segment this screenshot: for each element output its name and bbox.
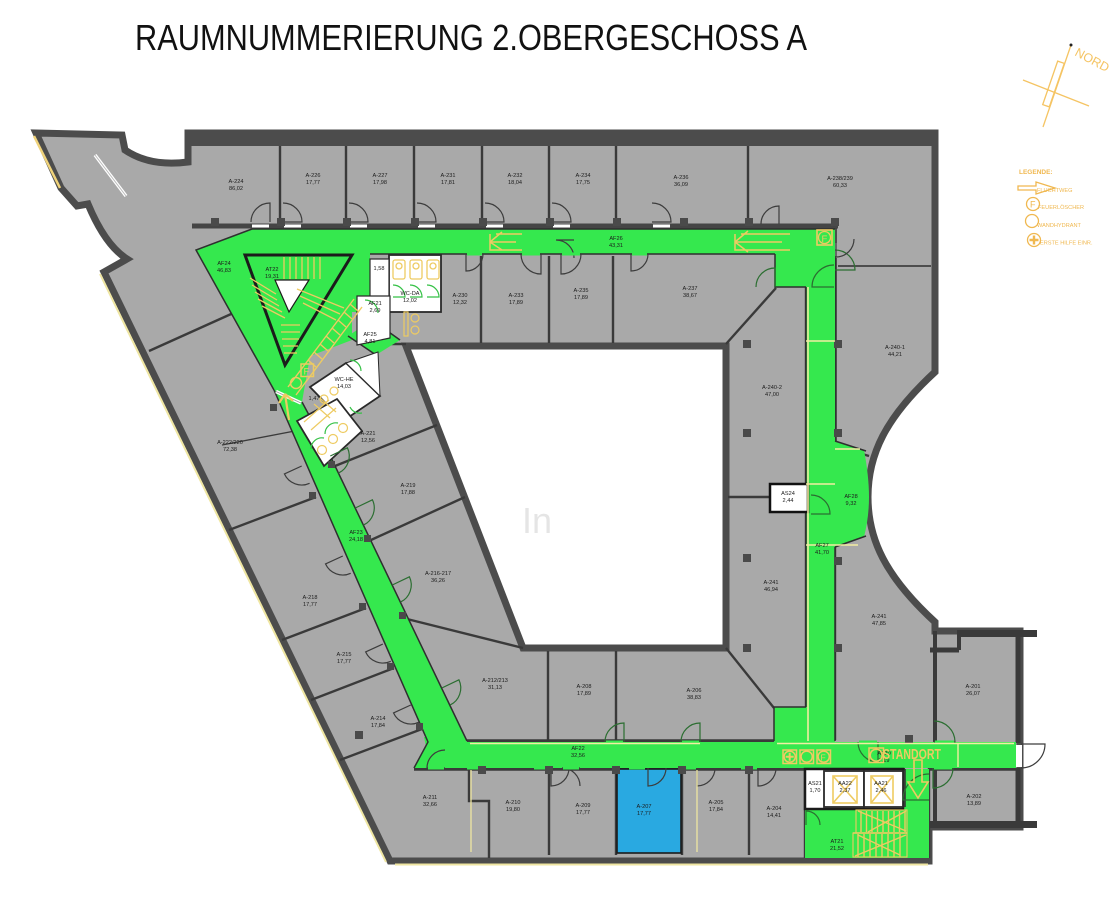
svg-text:AF289,32: AF289,32 [844,494,857,507]
svg-text:A-23417,75: A-23417,75 [576,173,591,186]
svg-text:A-22486,02: A-22486,02 [229,179,244,192]
svg-text:A-21817,77: A-21817,77 [303,595,318,608]
svg-text:A-22112,56: A-22112,56 [361,431,376,444]
svg-text:A-23012,32: A-23012,32 [453,293,468,306]
svg-text:A-21132,66: A-21132,66 [423,795,438,808]
svg-text:LEGENDE:: LEGENDE: [1019,169,1053,176]
svg-text:A-20638,83: A-20638,83 [687,688,702,701]
svg-text:AT2121,52: AT2121,52 [830,839,844,852]
svg-text:In: In [522,500,552,541]
svg-text:A-21417,84: A-21417,84 [371,716,386,729]
svg-text:F: F [1030,200,1036,210]
svg-text:A-24146,94: A-24146,94 [764,580,779,593]
svg-text:A-23317,89: A-23317,89 [509,293,524,306]
svg-text:AF2741,70: AF2741,70 [815,543,829,556]
svg-text:A-20717,77: A-20717,77 [637,804,652,817]
svg-text:FLUCHTWEG: FLUCHTWEG [1037,188,1072,194]
svg-text:A-22617,77: A-22617,77 [306,173,321,186]
svg-text:AS242,44: AS242,44 [781,491,795,504]
svg-text:A-22717,98: A-22717,98 [373,173,388,186]
svg-text:WANDHYDRANT: WANDHYDRANT [1037,223,1082,229]
svg-text:F: F [304,367,310,378]
svg-text:A-23738,67: A-23738,67 [683,286,698,299]
svg-text:1,47: 1,47 [309,396,320,402]
svg-text:A-21019,80: A-21019,80 [506,800,521,813]
svg-text:ERSTE HILFE EINR.: ERSTE HILFE EINR. [1040,241,1093,247]
svg-text:A-21917,88: A-21917,88 [401,483,416,496]
svg-text:A-20126,07: A-20126,07 [966,684,981,697]
svg-text:AF2446,83: AF2446,83 [217,261,231,274]
svg-text:WC-HE14,03: WC-HE14,03 [335,377,354,390]
svg-text:AS211,70: AS211,70 [808,781,822,794]
svg-text:A-20817,89: A-20817,89 [577,684,592,697]
svg-text:A-23218,04: A-23218,04 [508,173,523,186]
svg-text:AA222,37: AA222,37 [838,781,852,794]
svg-text:RAUMNUMMERIERUNG 2.OBERGESCHOS: RAUMNUMMERIERUNG 2.OBERGESCHOSS A [135,17,807,58]
svg-text:A-20213,89: A-20213,89 [967,794,982,807]
svg-text:A-240-247,00: A-240-247,00 [762,385,782,398]
svg-text:A-23117,81: A-23117,81 [441,173,456,186]
svg-text:AF2643,31: AF2643,31 [609,236,623,249]
svg-text:F: F [821,753,826,763]
svg-text:F: F [822,234,828,245]
svg-text:A-23517,89: A-23517,89 [574,288,589,301]
svg-text:AF2324,18: AF2324,18 [349,530,363,543]
svg-text:STANDORT: STANDORT [883,747,941,763]
svg-text:AF212,69: AF212,69 [368,301,381,314]
svg-text:A-240-144,21: A-240-144,21 [885,345,905,358]
svg-text:A-24147,85: A-24147,85 [872,614,887,627]
svg-text:A-21517,77: A-21517,77 [337,652,352,665]
svg-text:WC-DA12,02: WC-DA12,02 [401,291,420,304]
svg-text:AF254,81: AF254,81 [363,332,376,345]
svg-text:A-20917,77: A-20917,77 [576,803,591,816]
svg-text:FEUERLÖSCHER: FEUERLÖSCHER [1038,204,1084,211]
svg-text:AA212,46: AA212,46 [874,781,888,794]
svg-text:AT2219,31: AT2219,31 [265,267,279,280]
svg-text:1,58: 1,58 [374,266,385,272]
svg-text:A-20414,41: A-20414,41 [767,806,782,819]
svg-text:A-23636,09: A-23636,09 [674,175,689,188]
svg-text:AF2232,56: AF2232,56 [571,746,585,759]
svg-text:A-20517,84: A-20517,84 [709,800,724,813]
